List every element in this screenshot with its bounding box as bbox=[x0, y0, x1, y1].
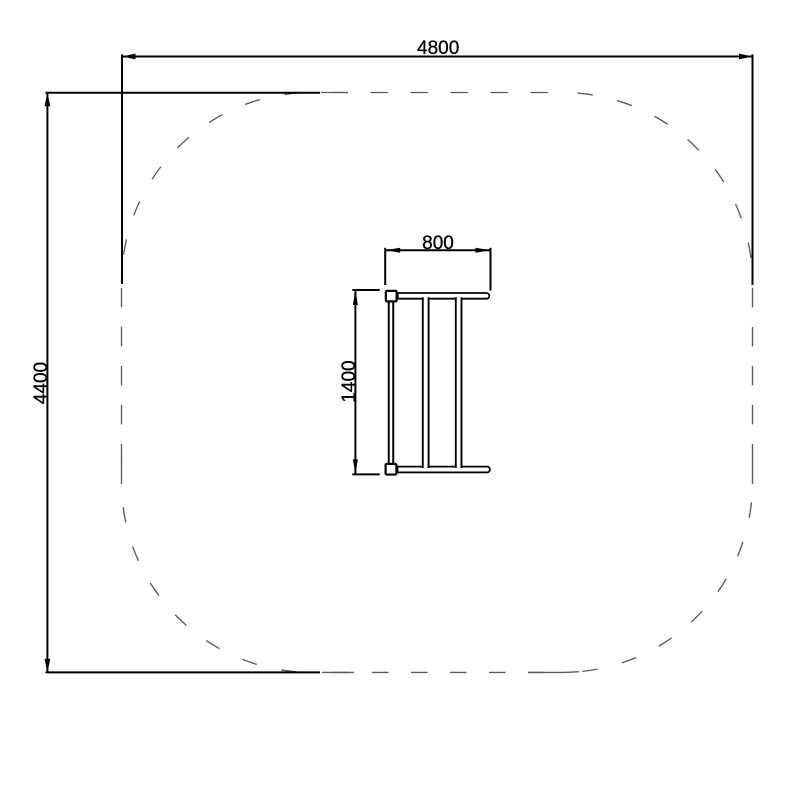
svg-text:1400: 1400 bbox=[339, 360, 360, 402]
svg-text:4800: 4800 bbox=[417, 38, 459, 59]
svg-text:4400: 4400 bbox=[31, 362, 52, 404]
svg-text:800: 800 bbox=[422, 233, 454, 254]
